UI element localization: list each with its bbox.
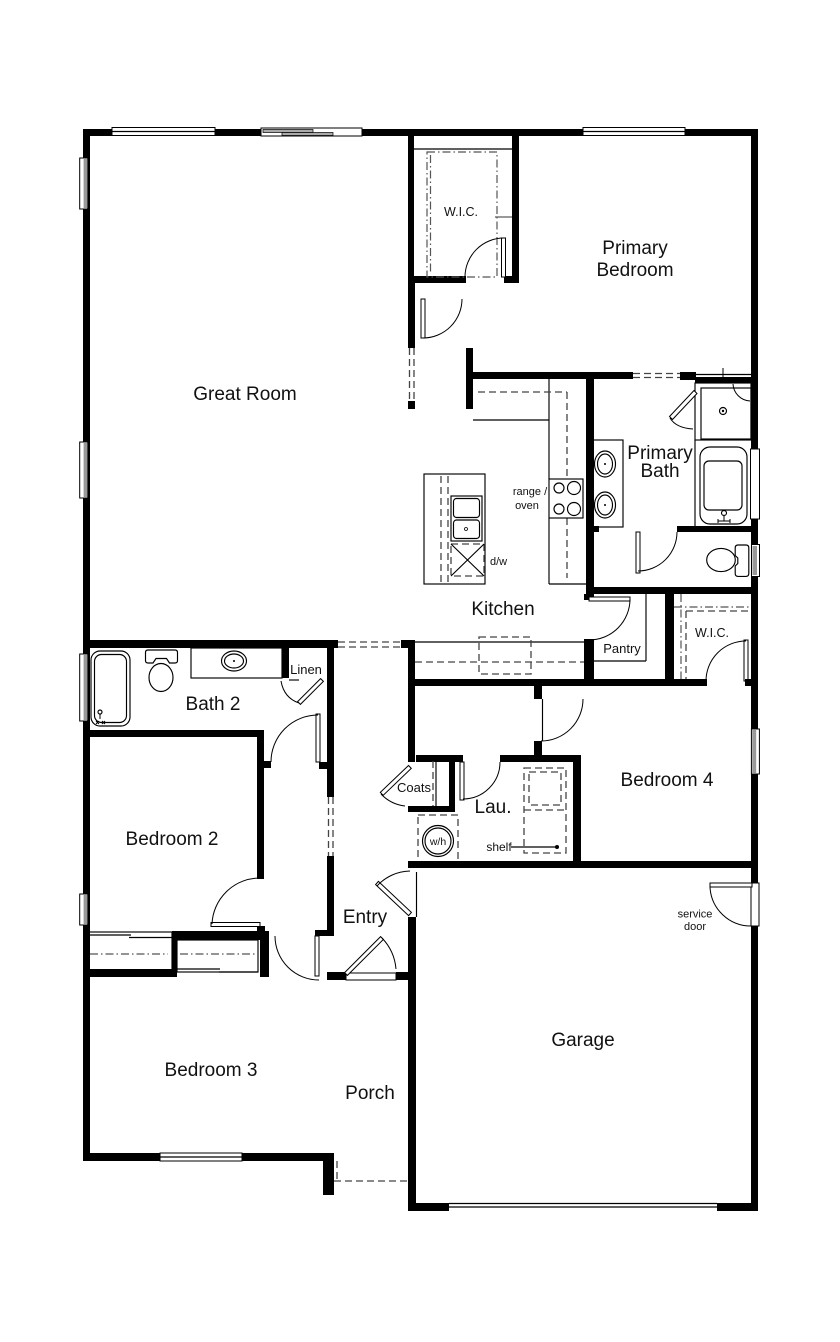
svg-text:shelf: shelf	[486, 840, 512, 854]
svg-text:Pantry: Pantry	[603, 641, 641, 656]
svg-text:Entry: Entry	[343, 907, 388, 928]
svg-text:W.I.C.: W.I.C.	[444, 205, 478, 219]
svg-text:w/h: w/h	[429, 836, 447, 848]
svg-text:Porch: Porch	[345, 1083, 395, 1104]
svg-text:service: service	[678, 909, 713, 921]
svg-text:door: door	[684, 921, 706, 933]
svg-text:Linen: Linen	[290, 662, 322, 677]
svg-text:Bath 2: Bath 2	[186, 694, 241, 715]
svg-text:oven: oven	[515, 500, 539, 512]
svg-text:Bedroom 3: Bedroom 3	[165, 1060, 258, 1081]
svg-text:Primary: Primary	[602, 238, 668, 259]
svg-text:Bedroom: Bedroom	[596, 260, 673, 281]
svg-text:Coats: Coats	[397, 780, 431, 795]
svg-text:Great Room: Great Room	[193, 384, 296, 405]
svg-text:W.I.C.: W.I.C.	[695, 626, 729, 640]
svg-text:Bedroom 4: Bedroom 4	[621, 770, 714, 791]
svg-text:Bedroom 2: Bedroom 2	[126, 829, 219, 850]
svg-text:d/w: d/w	[490, 556, 507, 568]
svg-text:Bath: Bath	[640, 461, 679, 482]
svg-text:Garage: Garage	[551, 1030, 614, 1051]
svg-text:range /: range /	[513, 486, 548, 498]
svg-text:Kitchen: Kitchen	[471, 599, 534, 620]
svg-text:Lau.: Lau.	[475, 797, 512, 818]
